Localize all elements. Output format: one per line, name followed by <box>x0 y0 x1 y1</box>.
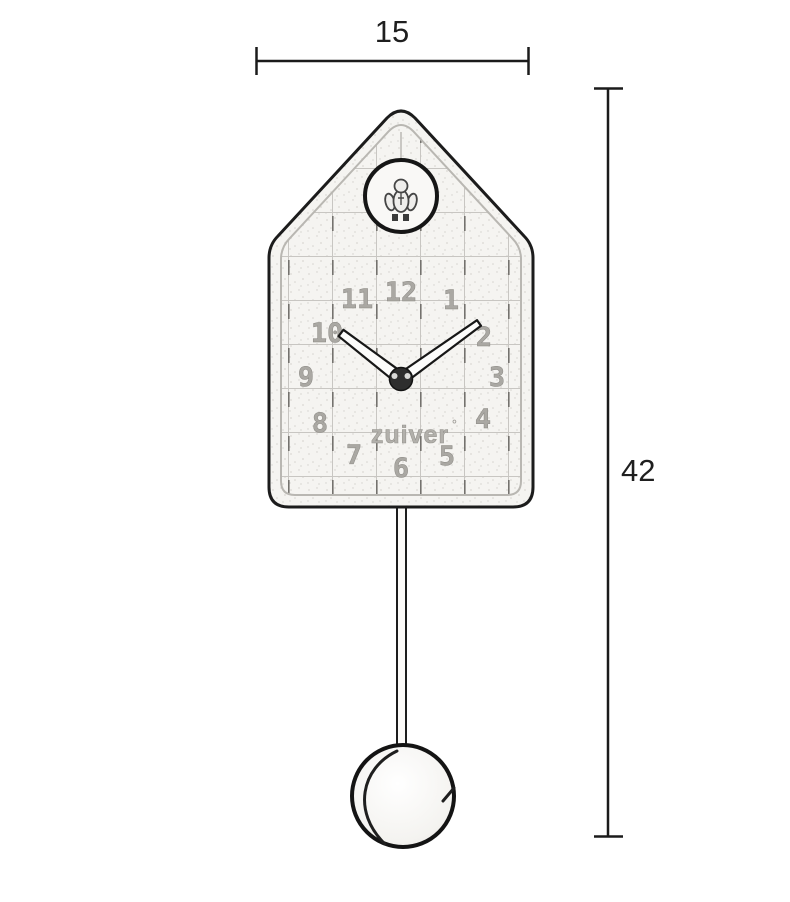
diagram-drawing: 15 42 <box>0 0 790 902</box>
brand-logo: zuiver ° <box>371 417 457 449</box>
dimension-diagram: 15 42 <box>0 0 790 902</box>
height-dimension: 42 <box>594 88 655 837</box>
width-dimension: 15 <box>256 14 529 75</box>
numeral-6: 6 <box>393 453 409 484</box>
numeral-10: 10 <box>311 318 344 349</box>
hands-hub <box>390 368 413 391</box>
pendulum-rod <box>397 505 406 748</box>
numeral-7: 7 <box>346 440 362 471</box>
hub-screw-left <box>392 373 398 379</box>
numeral-1: 1 <box>443 285 459 316</box>
hub-screw-right <box>405 373 411 379</box>
pendulum <box>352 505 454 847</box>
numeral-3: 3 <box>489 362 505 393</box>
brand-label: zuiver <box>371 421 449 449</box>
height-dimension-label: 42 <box>621 453 655 488</box>
numeral-4: 4 <box>475 404 491 435</box>
cuckoo-porthole <box>365 160 437 232</box>
numeral-8: 8 <box>312 408 328 439</box>
width-dimension-label: 15 <box>375 14 409 49</box>
numeral-11: 11 <box>341 284 374 315</box>
pendulum-bob <box>352 745 454 847</box>
numeral-9: 9 <box>298 362 314 393</box>
brand-trademark-icon: ° <box>452 417 457 431</box>
numeral-12: 12 <box>385 277 418 308</box>
